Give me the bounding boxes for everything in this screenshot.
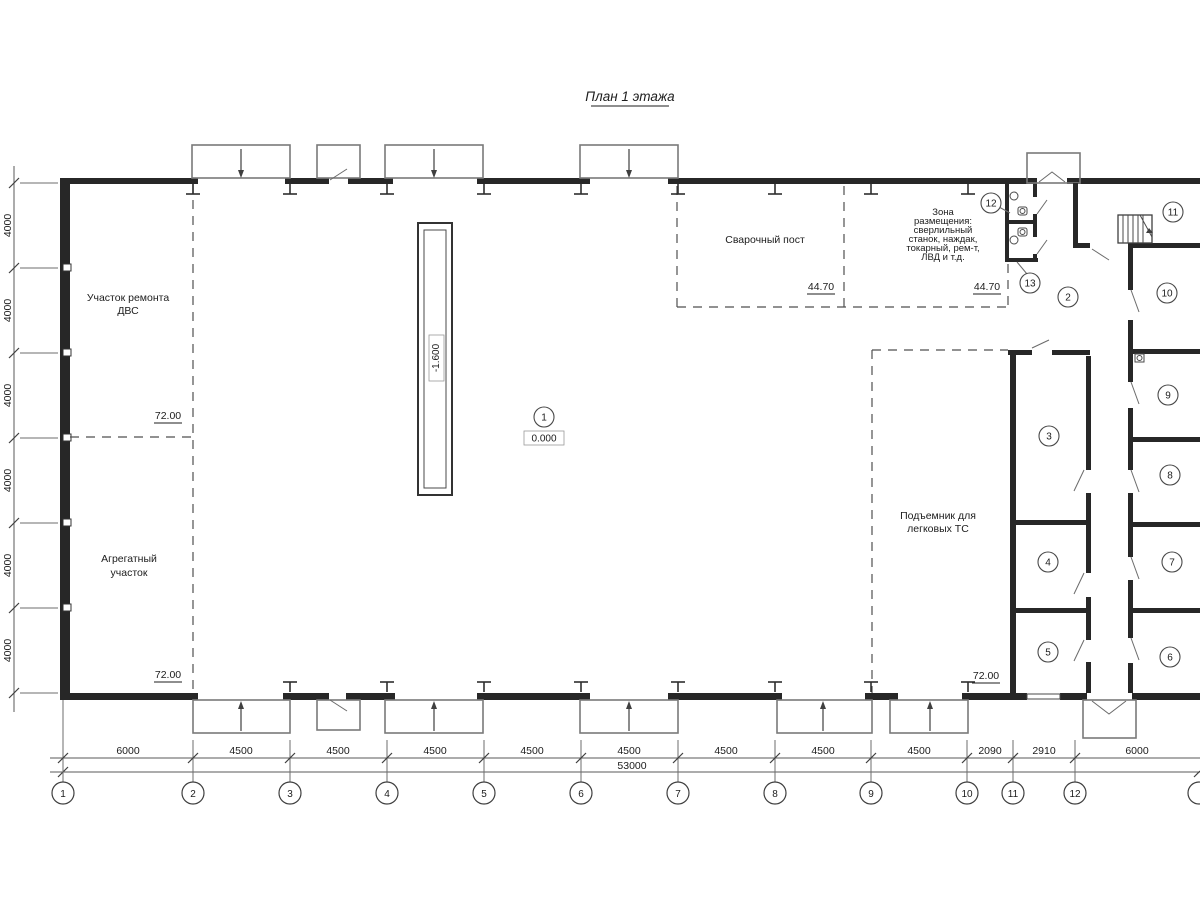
- dimensions-bottom: 53000 1234567891011126000450045004500450…: [50, 700, 1200, 804]
- dimension-label: 6000: [1125, 745, 1149, 757]
- svg-text:ЛВД и т.д.: ЛВД и т.д.: [921, 252, 965, 263]
- svg-text:1: 1: [541, 413, 547, 424]
- svg-text:44.70: 44.70: [974, 281, 1000, 293]
- gate-arrows-top: [241, 149, 629, 171]
- svg-text:72.00: 72.00: [155, 669, 181, 681]
- axis-number: 5: [481, 789, 487, 800]
- svg-text:ДВС: ДВС: [117, 305, 139, 317]
- axis-number: 7: [675, 789, 681, 800]
- aggregate-label: Агрегатный: [101, 553, 157, 565]
- entrance-door-swing: [1039, 172, 1065, 182]
- welding-post-label: Сварочный пост: [725, 234, 805, 246]
- dimension-label: 4500: [423, 745, 447, 757]
- area-mark: 72.00: [155, 410, 181, 422]
- interior-door-swings: [1032, 249, 1139, 661]
- dimension-label: 2910: [1032, 745, 1056, 757]
- dimension-label: 4500: [520, 745, 544, 757]
- room-number: 11: [1168, 208, 1179, 219]
- exit-door-swing: [1092, 701, 1126, 714]
- svg-text:72.00: 72.00: [973, 670, 999, 682]
- room-number: 6: [1167, 653, 1173, 664]
- axis-number: 2: [190, 789, 196, 800]
- axis-number: 8: [772, 789, 778, 800]
- axis-number: 11: [1008, 789, 1019, 800]
- dimensions-left: 400040004000400040004000: [2, 166, 58, 712]
- exterior-walls: [60, 178, 1200, 700]
- room-number: 8: [1167, 471, 1173, 482]
- inspection-pit: -1.600: [418, 223, 452, 495]
- axis-number: 9: [868, 789, 874, 800]
- sink-icon: [1135, 354, 1144, 362]
- axis-number: 3: [287, 789, 293, 800]
- hall-level-mark: 0.000: [531, 434, 556, 445]
- window: [1027, 694, 1060, 699]
- svg-text:участок: участок: [111, 567, 148, 579]
- room-number: 12: [985, 199, 997, 210]
- dimension-label-left: 4000: [2, 214, 14, 238]
- room-number: 7: [1169, 558, 1175, 569]
- axis-bubble-13-partial: [1188, 782, 1200, 804]
- elevation-marks: 72.00 72.00 72.00 44.70 44.70 1 0.000: [154, 281, 1001, 683]
- dimension-label: 4500: [714, 745, 738, 757]
- dimension-label: 4500: [907, 745, 931, 757]
- dimension-label: 2090: [978, 745, 1002, 757]
- room-number: 2: [1065, 293, 1071, 304]
- room-number: 3: [1046, 432, 1052, 443]
- gate-arrows-bottom: [241, 708, 930, 731]
- total-dimension: 53000: [617, 760, 646, 772]
- dimension-label: 4500: [229, 745, 253, 757]
- title-block: План 1 этажа: [585, 89, 675, 106]
- floor-plan-svg: План 1 этажа: [0, 0, 1200, 900]
- dimension-label: 4500: [811, 745, 835, 757]
- welding-area-mark: 44.70: [808, 281, 834, 293]
- room-number: 13: [1024, 279, 1036, 290]
- dimension-label-left: 4000: [2, 384, 14, 408]
- room-number: 10: [1161, 289, 1173, 300]
- gates-bottom: [193, 700, 1136, 738]
- dimension-label: 6000: [116, 745, 140, 757]
- wc-fixtures: [1010, 192, 1027, 244]
- drawing-title: План 1 этажа: [585, 89, 675, 104]
- car-lift-label: Подъемник для: [900, 510, 976, 522]
- dimension-label-left: 4000: [2, 469, 14, 493]
- dimension-label-left: 4000: [2, 554, 14, 578]
- room-number: 9: [1165, 391, 1171, 402]
- dimension-label-left: 4000: [2, 639, 14, 663]
- axis-number: 12: [1069, 789, 1081, 800]
- room-number: 4: [1045, 558, 1051, 569]
- room-number: 5: [1045, 648, 1051, 659]
- dimension-label: 4500: [326, 745, 350, 757]
- drawing-sheet: План 1 этажа: [0, 0, 1200, 900]
- engine-repair-label: Участок ремонта: [87, 292, 169, 304]
- room-labels: Участок ремонта ДВС Агрегатный участок С…: [87, 207, 980, 579]
- column-t-marks: [186, 184, 975, 692]
- svg-text:легковых ТС: легковых ТС: [907, 523, 969, 535]
- leader-13: [1017, 262, 1027, 274]
- dimension-label: 4500: [617, 745, 641, 757]
- staircase: [1118, 215, 1153, 243]
- sanitary-block: [999, 184, 1047, 274]
- door-swing-bottom: [330, 700, 347, 711]
- axis-number: 6: [578, 789, 584, 800]
- axis-number: 10: [961, 789, 973, 800]
- axis-number: 1: [60, 789, 66, 800]
- axis-number: 4: [384, 789, 390, 800]
- dimension-label-left: 4000: [2, 299, 14, 323]
- gates-top: [192, 145, 1080, 183]
- pit-depth-mark: -1.600: [431, 343, 442, 372]
- gate-arrowheads-top: [238, 170, 632, 178]
